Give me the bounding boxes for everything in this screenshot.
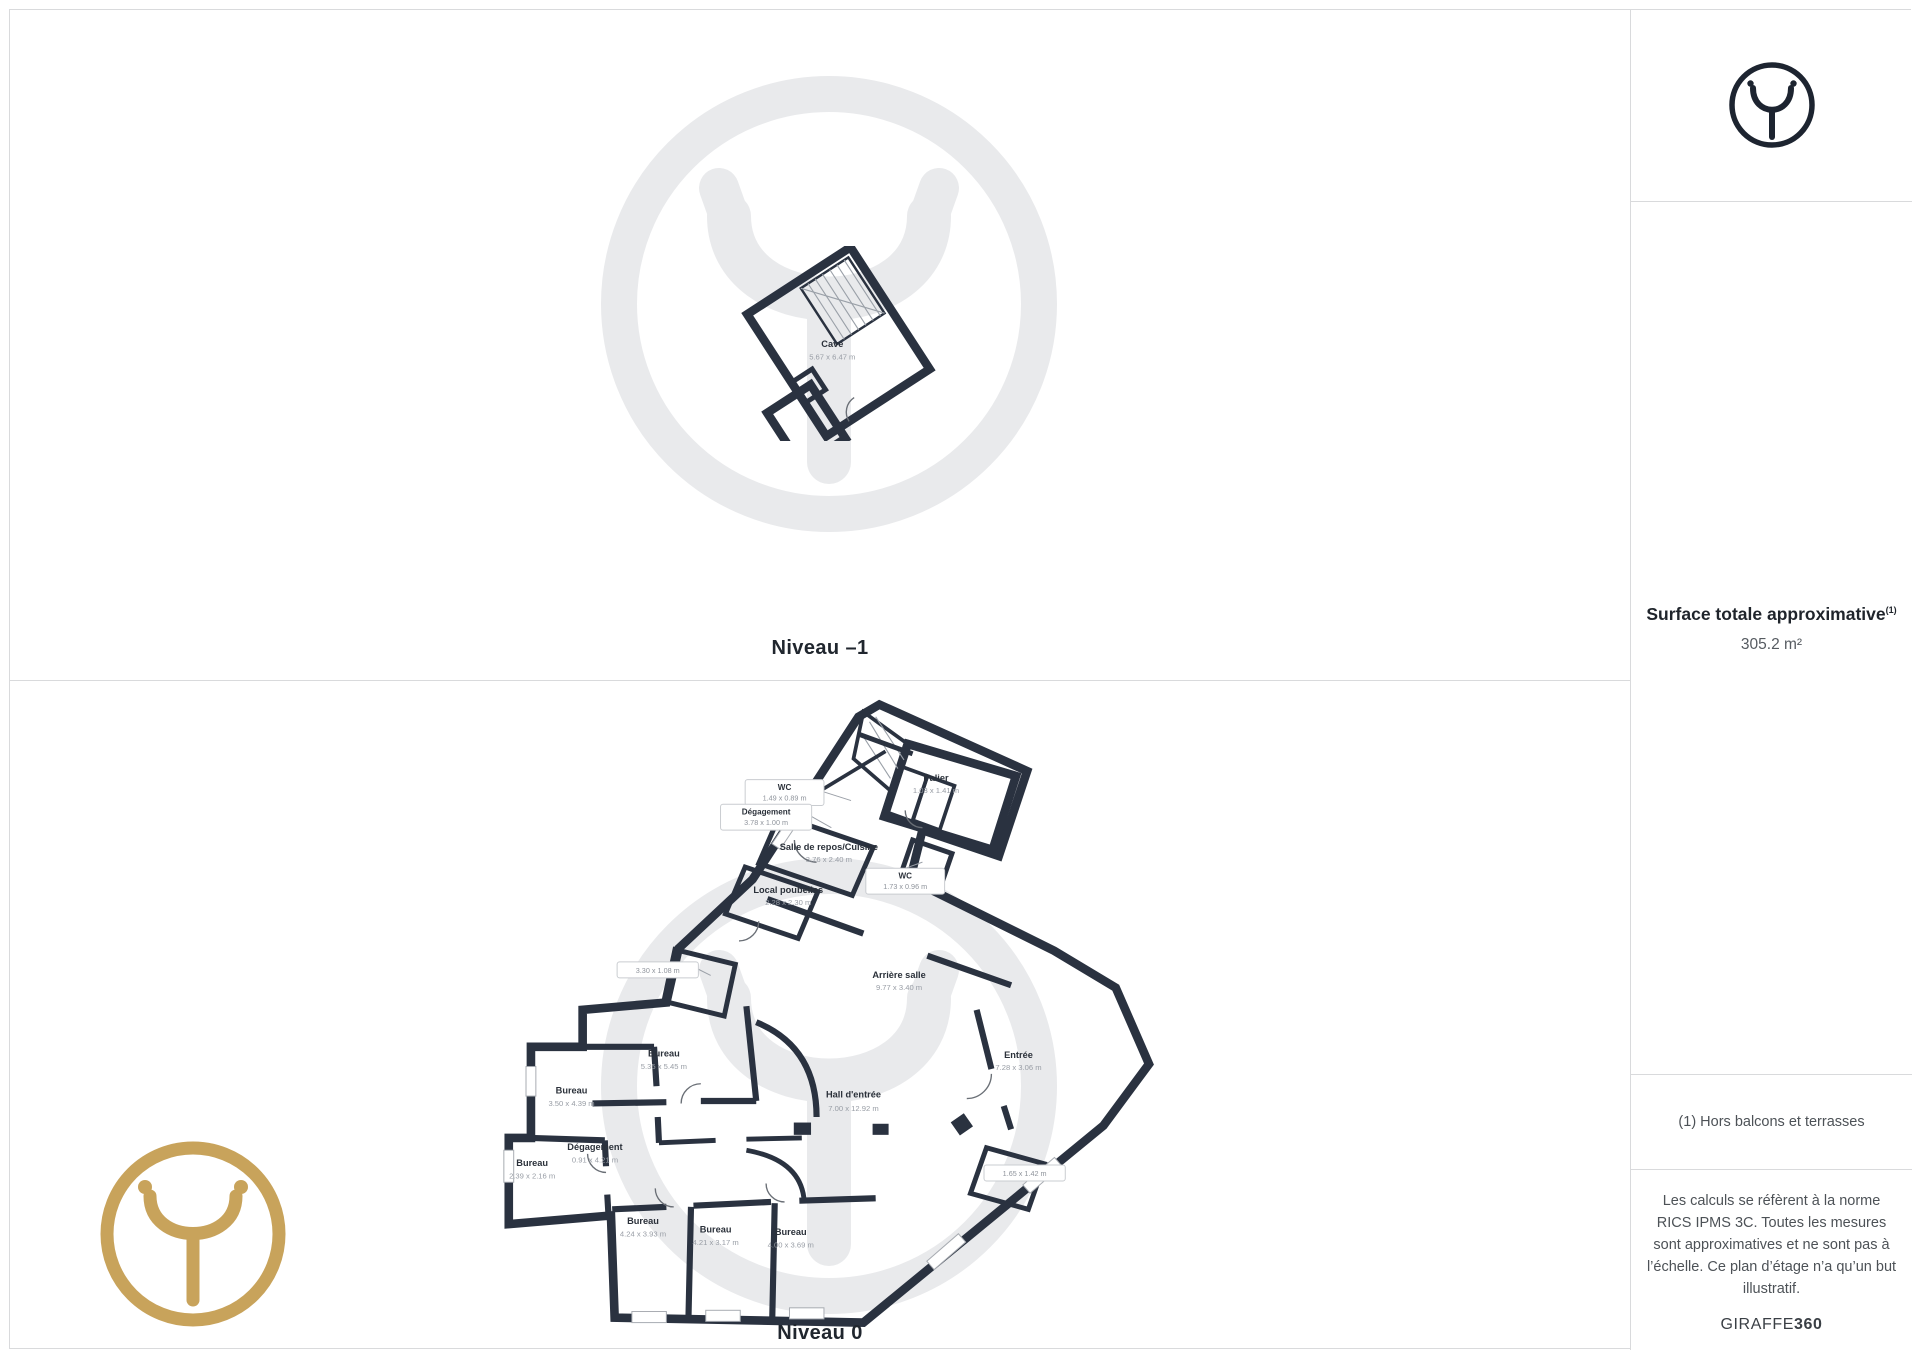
disclaimer: Les calculs se réfèrent à la norme RICS … (1631, 1169, 1912, 1350)
room-dims-hall-entree: 7.00 x 12.92 m (828, 1104, 878, 1113)
room-dims-small-right: 1.65 x 1.42 m (1003, 1169, 1047, 1178)
room-label-entree: Entrée (1004, 1050, 1033, 1060)
room-label-wc-2: WC (898, 872, 912, 881)
room-label-arriere-salle: Arrière salle (872, 970, 925, 980)
room-label-bureau-3: Bureau (516, 1158, 548, 1168)
room-dims-small-left: 3.30 x 1.08 m (636, 966, 680, 975)
room-label-palier: Palier (923, 773, 949, 783)
niveau-0-floorplan: Salle de repos/Cuisine 3.76 x 2.40 m Pal… (494, 692, 1165, 1345)
room-dims-arriere-salle: 9.77 x 3.40 m (876, 983, 922, 992)
room-dims-bureau-5: 4.21 x 3.17 m (693, 1238, 739, 1247)
room-dims-bureau-2: 3.50 x 4.39 m (548, 1099, 594, 1108)
surface-title-text: Surface totale approximative (1646, 604, 1885, 624)
room-label-degagement-2: Dégagement (567, 1142, 622, 1152)
surface-footnote-marker: (1) (1886, 605, 1897, 615)
room-dims-bureau-3: 2.39 x 2.16 m (509, 1172, 555, 1181)
room-dims-local-poubelles: 2.28 x 2.30 m (765, 898, 811, 907)
room-dims-wc-1: 1.49 x 0.89 m (763, 794, 807, 803)
room-label-bureau-6: Bureau (775, 1227, 807, 1237)
room-dims-bureau-6: 4.00 x 3.69 m (768, 1241, 814, 1250)
giraffe360-gold-logo-icon (93, 1134, 293, 1334)
logo-box (1631, 10, 1912, 202)
room-dims-bureau-1: 5.35 x 5.45 m (641, 1062, 687, 1071)
room-dims-degagement-1: 3.78 x 1.00 m (744, 818, 788, 827)
room-dims-degagement-2: 0.91 x 4.21 m (572, 1156, 618, 1165)
brand-regular: GIRAFFE (1720, 1316, 1794, 1333)
room-dims-bureau-4: 4.24 x 3.93 m (620, 1229, 666, 1238)
brand-wordmark: GIRAFFE360 (1631, 1316, 1912, 1334)
floorplan-page: Cave 5.67 x 6.47 m Niveau –1 (9, 9, 1911, 1349)
room-label-bureau-1: Bureau (648, 1049, 680, 1059)
brand-bold: 360 (1794, 1316, 1823, 1333)
giraffe360-logo-icon (1722, 55, 1822, 155)
room-dims-palier: 1.03 x 1.41 m (913, 786, 959, 795)
room-label-bureau-5: Bureau (700, 1225, 732, 1235)
footnote-text: (1) Hors balcons et terrasses (1678, 1114, 1864, 1130)
surface-title: Surface totale approximative(1) (1631, 604, 1912, 625)
room-label-cave: Cave (821, 339, 843, 349)
room-label-local-poubelles: Local poubelles (753, 885, 823, 895)
room-dims-entree: 7.28 x 3.06 m (995, 1063, 1041, 1072)
room-label-bureau-2: Bureau (556, 1086, 588, 1096)
level-0-caption: Niveau 0 (10, 1322, 1630, 1345)
level-minus1-caption: Niveau –1 (10, 637, 1630, 660)
service-rooms (664, 766, 1044, 1209)
plans-area: Cave 5.67 x 6.47 m Niveau –1 (10, 10, 1630, 1350)
disclaimer-text: Les calculs se réfèrent à la norme RICS … (1646, 1190, 1898, 1300)
room-label-salle-repos: Salle de repos/Cuisine (780, 842, 878, 852)
level-minus1-panel: Cave 5.67 x 6.47 m Niveau –1 (10, 10, 1630, 681)
niveau-minus1-floorplan: Cave 5.67 x 6.47 m (719, 246, 937, 441)
floor-outline (509, 705, 1149, 1323)
level-0-panel: Salle de repos/Cuisine 3.76 x 2.40 m Pal… (10, 682, 1630, 1350)
surface-summary: Surface totale approximative(1) 305.2 m² (1631, 604, 1912, 654)
room-label-bureau-4: Bureau (627, 1216, 659, 1226)
room-label-wc-1: WC (778, 783, 792, 792)
room-dims-salle-repos: 3.76 x 2.40 m (806, 855, 852, 864)
info-sidebar: Surface totale approximative(1) 305.2 m²… (1630, 10, 1912, 1350)
surface-value: 305.2 m² (1631, 636, 1912, 654)
footnote: (1) Hors balcons et terrasses (1631, 1074, 1912, 1169)
room-label-hall-entree: Hall d'entrée (826, 1089, 881, 1099)
room-label-degagement-1: Dégagement (742, 808, 791, 817)
room-dims-wc-2: 1.73 x 0.96 m (883, 882, 927, 891)
room-dims-cave: 5.67 x 6.47 m (809, 353, 855, 362)
